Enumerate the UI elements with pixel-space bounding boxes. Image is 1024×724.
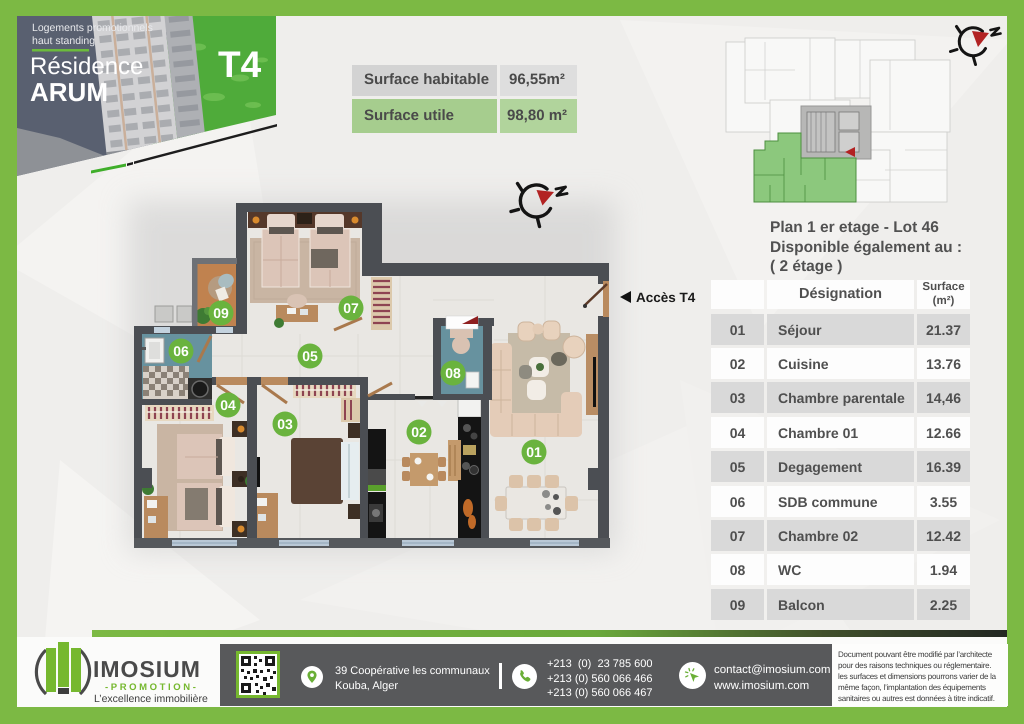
svg-text:Logements promotionnels: Logements promotionnels bbox=[32, 22, 153, 34]
svg-text:02: 02 bbox=[411, 424, 427, 440]
svg-text:01: 01 bbox=[526, 444, 542, 460]
svg-text:04: 04 bbox=[220, 397, 236, 413]
svg-text:T4: T4 bbox=[218, 44, 262, 85]
svg-text:Résidence: Résidence bbox=[30, 53, 143, 80]
svg-text:09: 09 bbox=[213, 305, 229, 321]
svg-text:07: 07 bbox=[343, 300, 359, 316]
svg-text:03: 03 bbox=[277, 416, 293, 432]
svg-text:06: 06 bbox=[173, 343, 189, 359]
svg-text:05: 05 bbox=[302, 348, 318, 364]
svg-text:ARUM: ARUM bbox=[30, 77, 108, 107]
svg-text:08: 08 bbox=[445, 365, 461, 381]
svg-text:Accès T4: Accès T4 bbox=[636, 290, 696, 305]
svg-text:haut standing: haut standing bbox=[32, 35, 95, 47]
